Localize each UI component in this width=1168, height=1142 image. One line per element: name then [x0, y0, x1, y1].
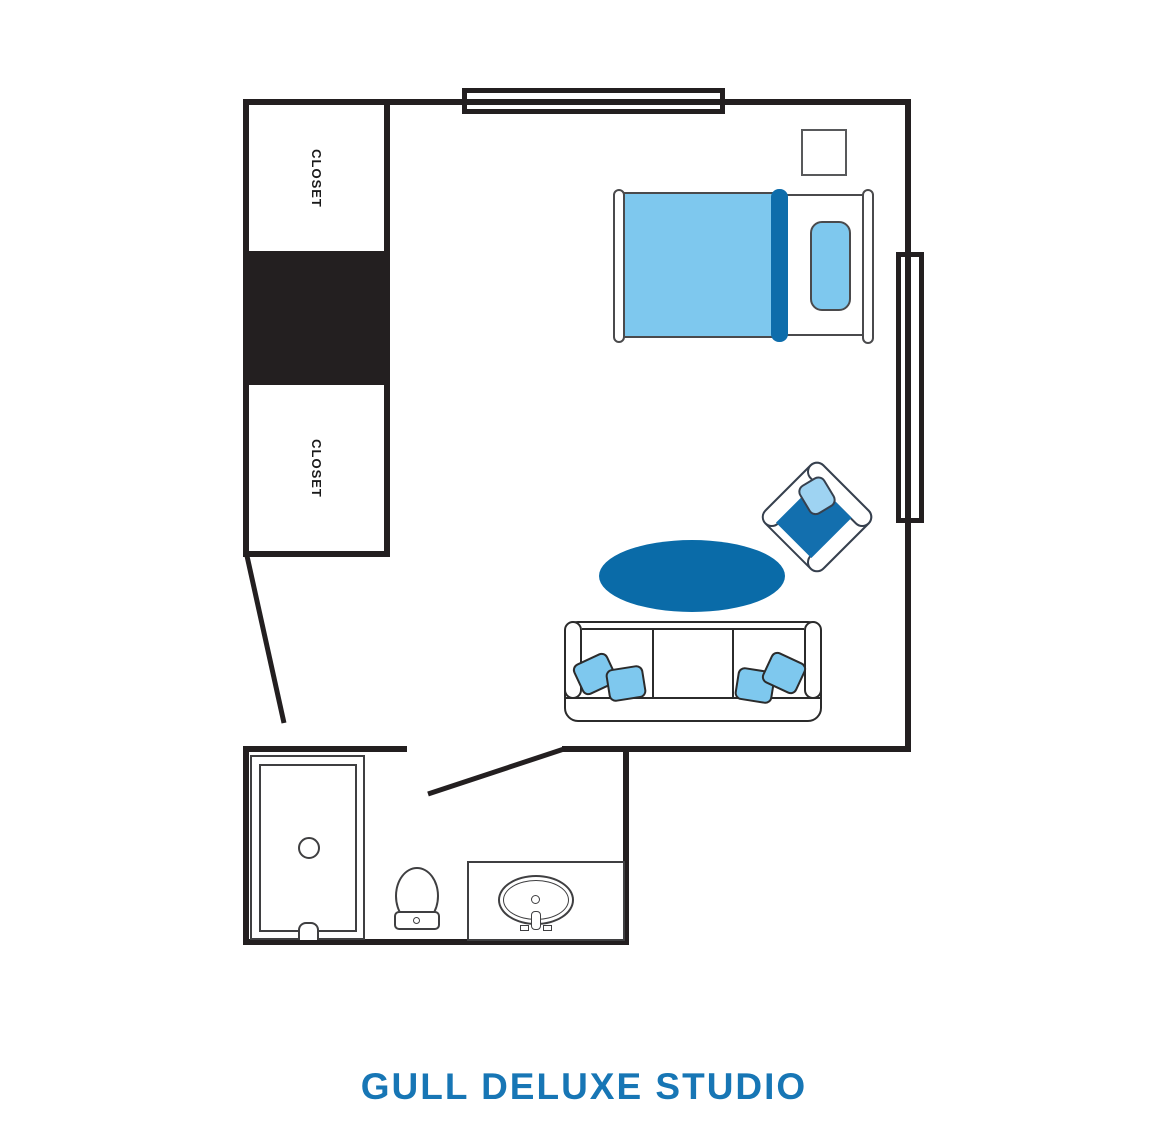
angled-walls	[0, 0, 1168, 1142]
toilet-flush-button	[413, 917, 420, 924]
sink-drain	[531, 895, 540, 904]
wall-closet-bottom	[243, 551, 390, 557]
plan-title: GULL DELUXE STUDIO	[0, 1066, 1168, 1108]
sofa-cushion-divider	[732, 628, 734, 697]
bed-blanket-fold	[771, 189, 788, 342]
nightstand	[801, 129, 847, 176]
bed-pillow	[810, 221, 851, 311]
sofa-cushion-divider	[652, 628, 654, 697]
armchair	[758, 458, 877, 577]
floor-plan: CLOSET CLOSET	[0, 0, 1168, 1142]
sink-faucet	[531, 911, 541, 930]
bathroom-door-leaf	[428, 749, 564, 794]
faucet-handle-left	[520, 925, 529, 931]
sofa-pillow	[605, 664, 648, 703]
wall-bathroom-top	[243, 746, 407, 752]
solid-wall-block	[243, 251, 390, 385]
sofa-seat-edge	[582, 628, 804, 630]
faucet-handle-right	[543, 925, 552, 931]
window-right	[896, 252, 924, 523]
closet-lower-label: CLOSET	[309, 439, 324, 498]
wall-bottom-main	[562, 746, 911, 752]
closet-lower: CLOSET	[249, 385, 384, 551]
shower-fixture	[298, 922, 319, 940]
sofa	[564, 621, 822, 722]
closet-upper: CLOSET	[249, 105, 384, 251]
wall-bathroom-left	[243, 746, 249, 945]
sofa-arm-right	[804, 621, 822, 699]
oval-rug	[599, 540, 785, 612]
bed-blanket	[622, 192, 778, 338]
window-top	[462, 88, 725, 114]
entry-angled-wall	[247, 556, 284, 723]
bed-footboard	[613, 189, 625, 343]
shower-drain	[298, 837, 320, 859]
closet-upper-label: CLOSET	[309, 149, 324, 208]
bed-headboard	[862, 189, 874, 344]
sofa-back-edge	[565, 697, 821, 699]
